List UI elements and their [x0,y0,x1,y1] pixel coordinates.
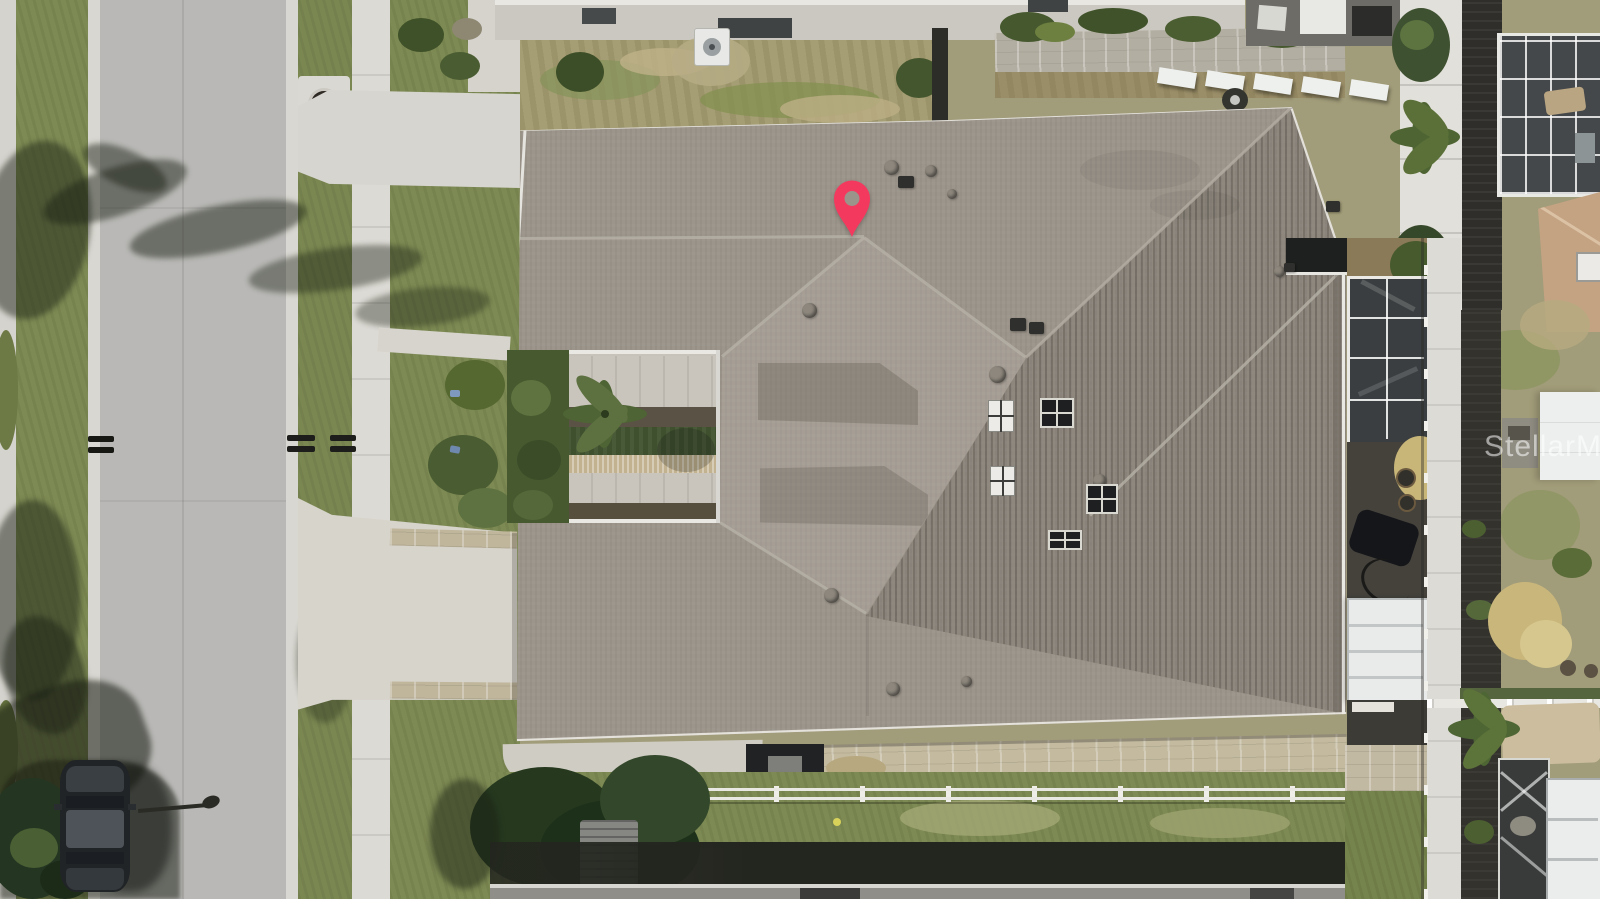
south-white-fence [688,786,1428,802]
car-hood [66,766,124,792]
dark-pit [1352,6,1392,36]
patio-chair [1575,133,1595,163]
parked-car [56,756,196,899]
ac-fan-icon [703,38,721,56]
shrub-light [1035,22,1075,42]
shrub [445,360,505,410]
courtyard-mulch [567,503,716,519]
ne-flat-roof-section [1286,238,1347,275]
dirt-patch [1520,300,1590,350]
dirt-patch [780,95,900,123]
location-pin[interactable] [832,179,872,237]
dry-grass-patch [1150,808,1290,838]
plant-pot [1398,470,1414,486]
east-patio-lower [1347,700,1427,745]
fire-pit [1222,88,1248,112]
roof-hatch-dark [800,888,860,899]
shrub [1464,820,1494,844]
roof-stain-band [758,363,918,425]
se-grass [1345,791,1430,899]
rear-neighbor-gutter [495,0,1245,5]
screen-reflection [1358,366,1419,397]
courtyard-palm [555,380,655,450]
car-mirror [54,804,62,810]
se-paver-pad [1345,745,1430,791]
rear-neighbor-window [582,8,616,24]
rock-pile [452,18,482,40]
south-shadow-band [490,842,1347,888]
shrub [458,488,513,528]
ac-unit [694,28,730,66]
window-white [1576,252,1600,282]
utility-marker [450,390,460,397]
driveway-paver-strip [390,681,517,699]
shrub [440,52,480,80]
street-seam [100,500,286,502]
car-mirror [128,804,136,810]
rear-neighbor-window [1028,0,1068,12]
tree-canopy-light [1400,20,1434,50]
ne-pool-screen [1497,33,1600,197]
car-trunk [66,868,124,890]
car-body [60,760,130,892]
roof-vent-dark [1326,201,1340,212]
palm-tree [1390,96,1460,182]
garage-shadow [512,533,517,700]
mailbox-east-b [330,435,358,453]
mls-watermark: StellarMLS [1484,430,1600,464]
dry-grass-patch [900,800,1060,836]
gutter-east [1342,268,1345,813]
plant-pot [1560,660,1576,676]
shrub [1462,520,1486,538]
east-patio-dark [1347,442,1427,600]
gray-panel [1257,5,1287,31]
roof-eave-shadow [1335,270,1339,810]
courtyard-paver-walk [567,473,716,503]
black-gate [932,28,948,124]
shrub [428,435,498,495]
utility-marker [449,445,460,454]
br-screen-structure [1498,758,1550,899]
car-windshield [66,796,124,808]
driveway-paver-strip [390,528,517,548]
street-seam [100,207,286,209]
car-roof [66,810,124,848]
mailbox-east-a [287,435,317,453]
white-door-frame [1352,702,1394,712]
yellow-ball [833,818,841,826]
courtyard-east-wall [716,350,720,523]
south-neighbor-roof [490,888,1347,899]
aerial-photo: StellarMLS [0,0,1600,899]
shrub [1078,8,1148,34]
screen-reflection [1360,279,1415,312]
front-courtyard [507,350,720,523]
tan-roof-ridge [1540,206,1600,251]
car-rear-window [66,852,124,864]
plant-pot [1584,664,1598,678]
roof-stain-band [760,466,928,526]
roof-seam [866,614,869,716]
upper-driveway-pad [298,88,520,190]
roof-ridge [520,235,864,240]
courtyard-entry-shadow [657,428,715,472]
mailbox-west [88,436,118,454]
roof-hatch-dark [1250,888,1294,899]
shrub [1165,16,1221,42]
ne-dark-pavers [1246,0,1400,46]
white-panel [1300,0,1346,34]
plant-pot [1400,496,1414,510]
shrub [398,18,444,52]
roof-stain [1080,150,1200,190]
location-pin-icon [832,179,872,237]
white-fence-row [1158,64,1400,104]
east-fence-posts [1424,238,1428,899]
br-palm-tree [1448,692,1520,766]
bush [556,52,604,92]
east-white-path [1427,238,1461,899]
br-pergola [1546,778,1600,899]
main-pergola [1347,598,1429,702]
patio-table [1544,86,1587,115]
east-mulch-path [1462,0,1502,310]
shrub [1552,548,1592,578]
